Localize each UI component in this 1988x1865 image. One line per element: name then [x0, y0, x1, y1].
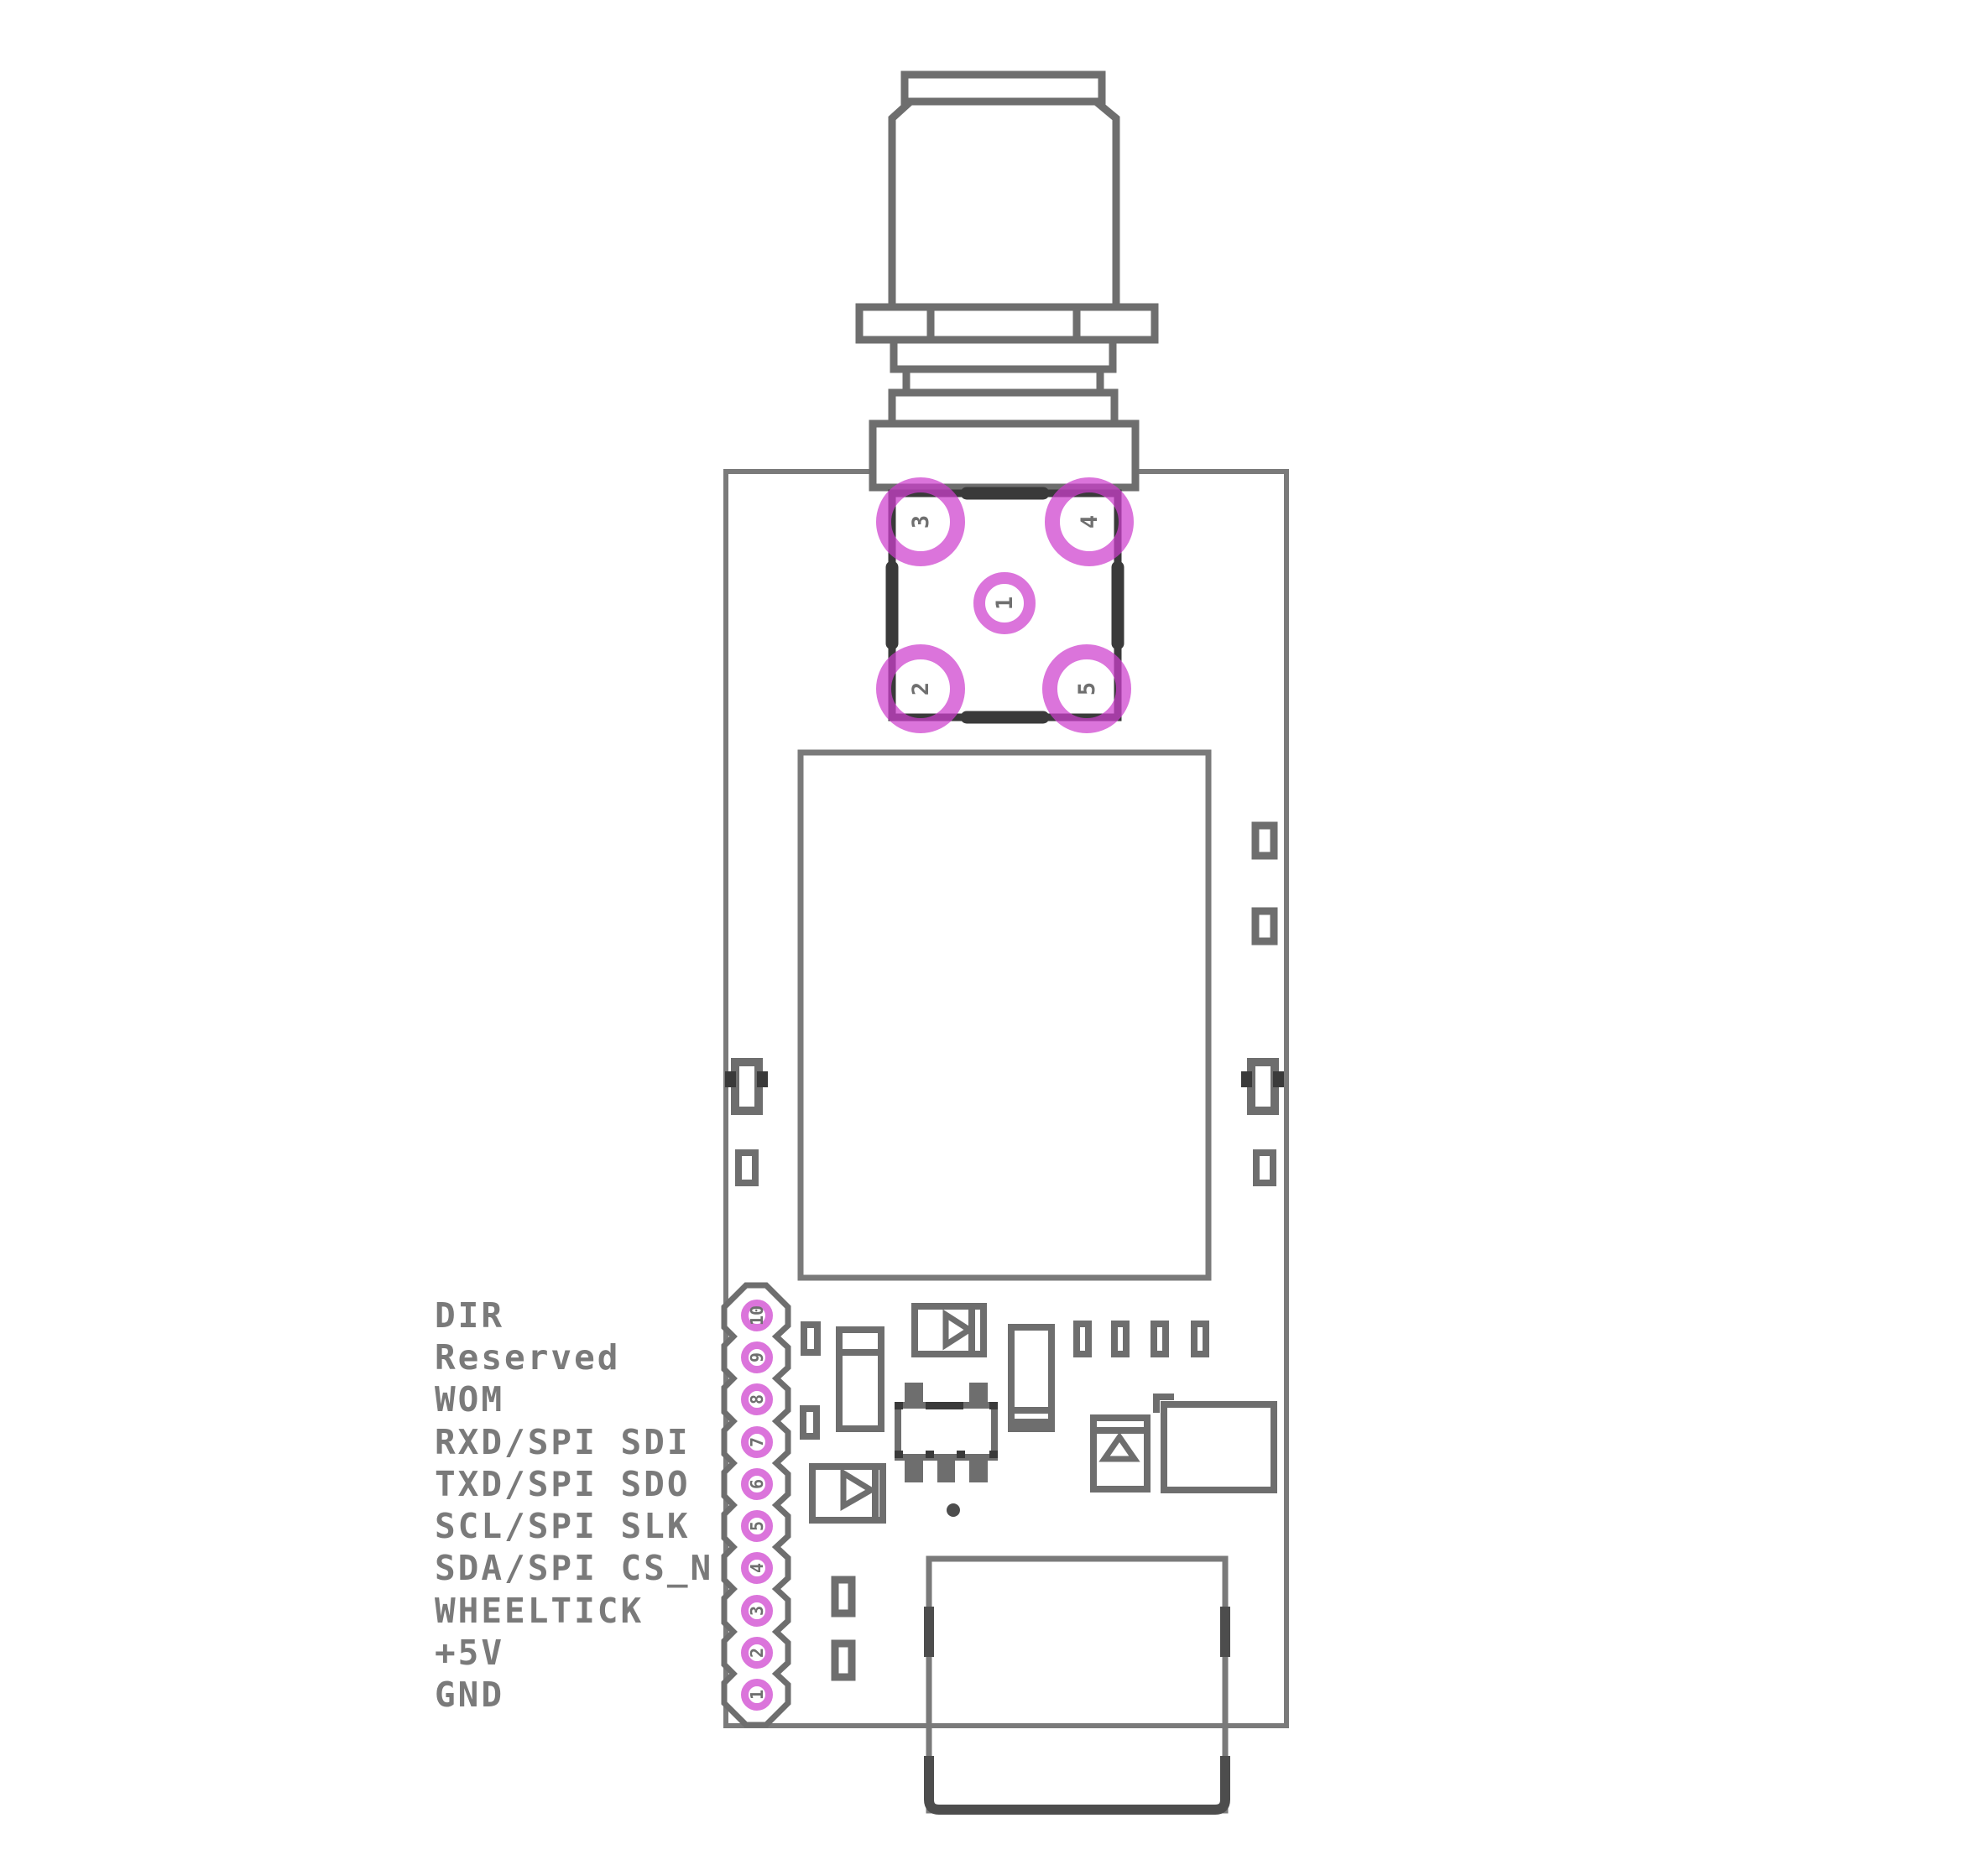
sot-nub-tl: [895, 1402, 903, 1409]
label-pin-2: +5V: [435, 1633, 504, 1673]
diode-d2-triangle-icon: [843, 1473, 871, 1506]
label-pin-4: SDA/SPI CS_N: [435, 1548, 713, 1588]
bead-left-outline: [735, 1062, 759, 1111]
pad-left-lower: [738, 1153, 755, 1183]
label-pin-9: Reserved: [435, 1337, 620, 1378]
label-pin-3: WHEELTICK: [435, 1591, 644, 1631]
diode-d1-triangle-icon: [946, 1315, 969, 1345]
header-pad-1-number: 1: [747, 1690, 767, 1700]
mid-components: [812, 1306, 1274, 1520]
header-pad-10-number: 10: [747, 1305, 767, 1326]
pad-right-lower: [1256, 1153, 1273, 1183]
via-pad-4: [835, 1644, 852, 1677]
pad-right-top-1: [1255, 826, 1274, 856]
antenna-flange: [859, 307, 1155, 340]
header-pad-3-number: 3: [747, 1606, 767, 1616]
header-pad-8-number: 8: [747, 1394, 767, 1404]
sot-nub-b1: [895, 1451, 903, 1458]
antenna-cap: [905, 75, 1102, 102]
bead-left-nub-b: [757, 1071, 768, 1087]
pad-right-top-2: [1255, 911, 1274, 941]
usb-shell-outline: [929, 1559, 1225, 1810]
antenna-neck-3: [892, 393, 1114, 424]
pin-header-outline: [724, 1285, 788, 1725]
bead-right-nub-a: [1241, 1071, 1252, 1087]
sot-nub-b4: [989, 1451, 998, 1458]
label-pin-8: WOM: [435, 1379, 504, 1420]
pcb-diagram: 1 2 3 4 5: [0, 0, 1988, 1865]
pin-labels: DIR Reserved WOM RXD/SPI SDI TXD/SPI SDO…: [435, 1295, 713, 1715]
pin-header: 1 2 3 4 5 6 7 8 9 10: [724, 1285, 852, 1725]
diode-d3-triangle-icon: [1104, 1437, 1135, 1459]
usb-plug-lower-shell: [929, 1756, 1225, 1810]
header-pad-7-number: 7: [747, 1437, 767, 1447]
label-pin-6: TXD/SPI SDO: [435, 1464, 691, 1504]
label-pin-1: GND: [435, 1675, 504, 1715]
pad-row-3: [1154, 1324, 1166, 1354]
label-pin-7: RXD/SPI SDI: [435, 1422, 691, 1462]
header-pad-6-number: 6: [747, 1479, 767, 1489]
board-outline-group: [726, 471, 1286, 1726]
bead-right-nub-b: [1273, 1071, 1284, 1087]
pad-row-1: [1077, 1324, 1088, 1354]
side-pads: [735, 826, 1275, 1183]
sma-pad-5-number: 5: [1074, 682, 1100, 695]
bead-right-outline: [1251, 1062, 1275, 1111]
sot-body: [898, 1405, 994, 1457]
sot-top-bar: [926, 1402, 963, 1409]
sma-pad-2-number: 2: [908, 682, 934, 695]
sma-pad-1-number: 1: [992, 596, 1018, 610]
pad-row-2: [1114, 1324, 1126, 1354]
sma-pad-numbers: 1 2 3 4 5: [908, 515, 1103, 695]
label-pin-5: SCL/SPI SLK: [435, 1506, 691, 1546]
via-pad-1: [804, 1325, 817, 1352]
bead-nubs: [725, 1071, 1284, 1087]
board-outline: [726, 471, 1286, 1726]
module-outline-group: [801, 753, 1208, 1278]
ic-u1-outline: [1164, 1404, 1274, 1490]
via-pad-2: [803, 1409, 817, 1436]
pcb-layout-svg: 1 2 3 4 5: [0, 0, 1988, 1865]
sot-nub-tr: [989, 1402, 998, 1409]
sot23-5-regulator: [895, 1383, 998, 1482]
sma-pad-4-number: 4: [1077, 515, 1103, 529]
antenna-body: [892, 102, 1116, 309]
antenna-neck-1: [894, 340, 1113, 369]
pad-row-4: [1194, 1324, 1206, 1354]
header-pad-2-number: 2: [747, 1648, 767, 1658]
bead-left-nub-a: [725, 1071, 736, 1087]
header-pad-5-number: 5: [747, 1521, 767, 1531]
via-pad-3: [835, 1580, 852, 1613]
antenna-base: [873, 424, 1135, 487]
sot-nub-b2: [926, 1451, 934, 1458]
header-pad-4-number: 4: [747, 1563, 767, 1573]
usb-shell-dark-marks: [929, 1607, 1225, 1810]
sma-pad-3-number: 3: [908, 515, 934, 529]
header-pad-9-number: 9: [747, 1352, 767, 1362]
usb-connector: [929, 1559, 1225, 1810]
gnss-module-outline: [801, 753, 1208, 1278]
fiducial-dot: [947, 1503, 960, 1517]
label-pin-10: DIR: [435, 1295, 504, 1336]
sot-nub-b3: [957, 1451, 965, 1458]
antenna-connector: [859, 75, 1155, 487]
resistor-r1-outline: [839, 1330, 881, 1429]
